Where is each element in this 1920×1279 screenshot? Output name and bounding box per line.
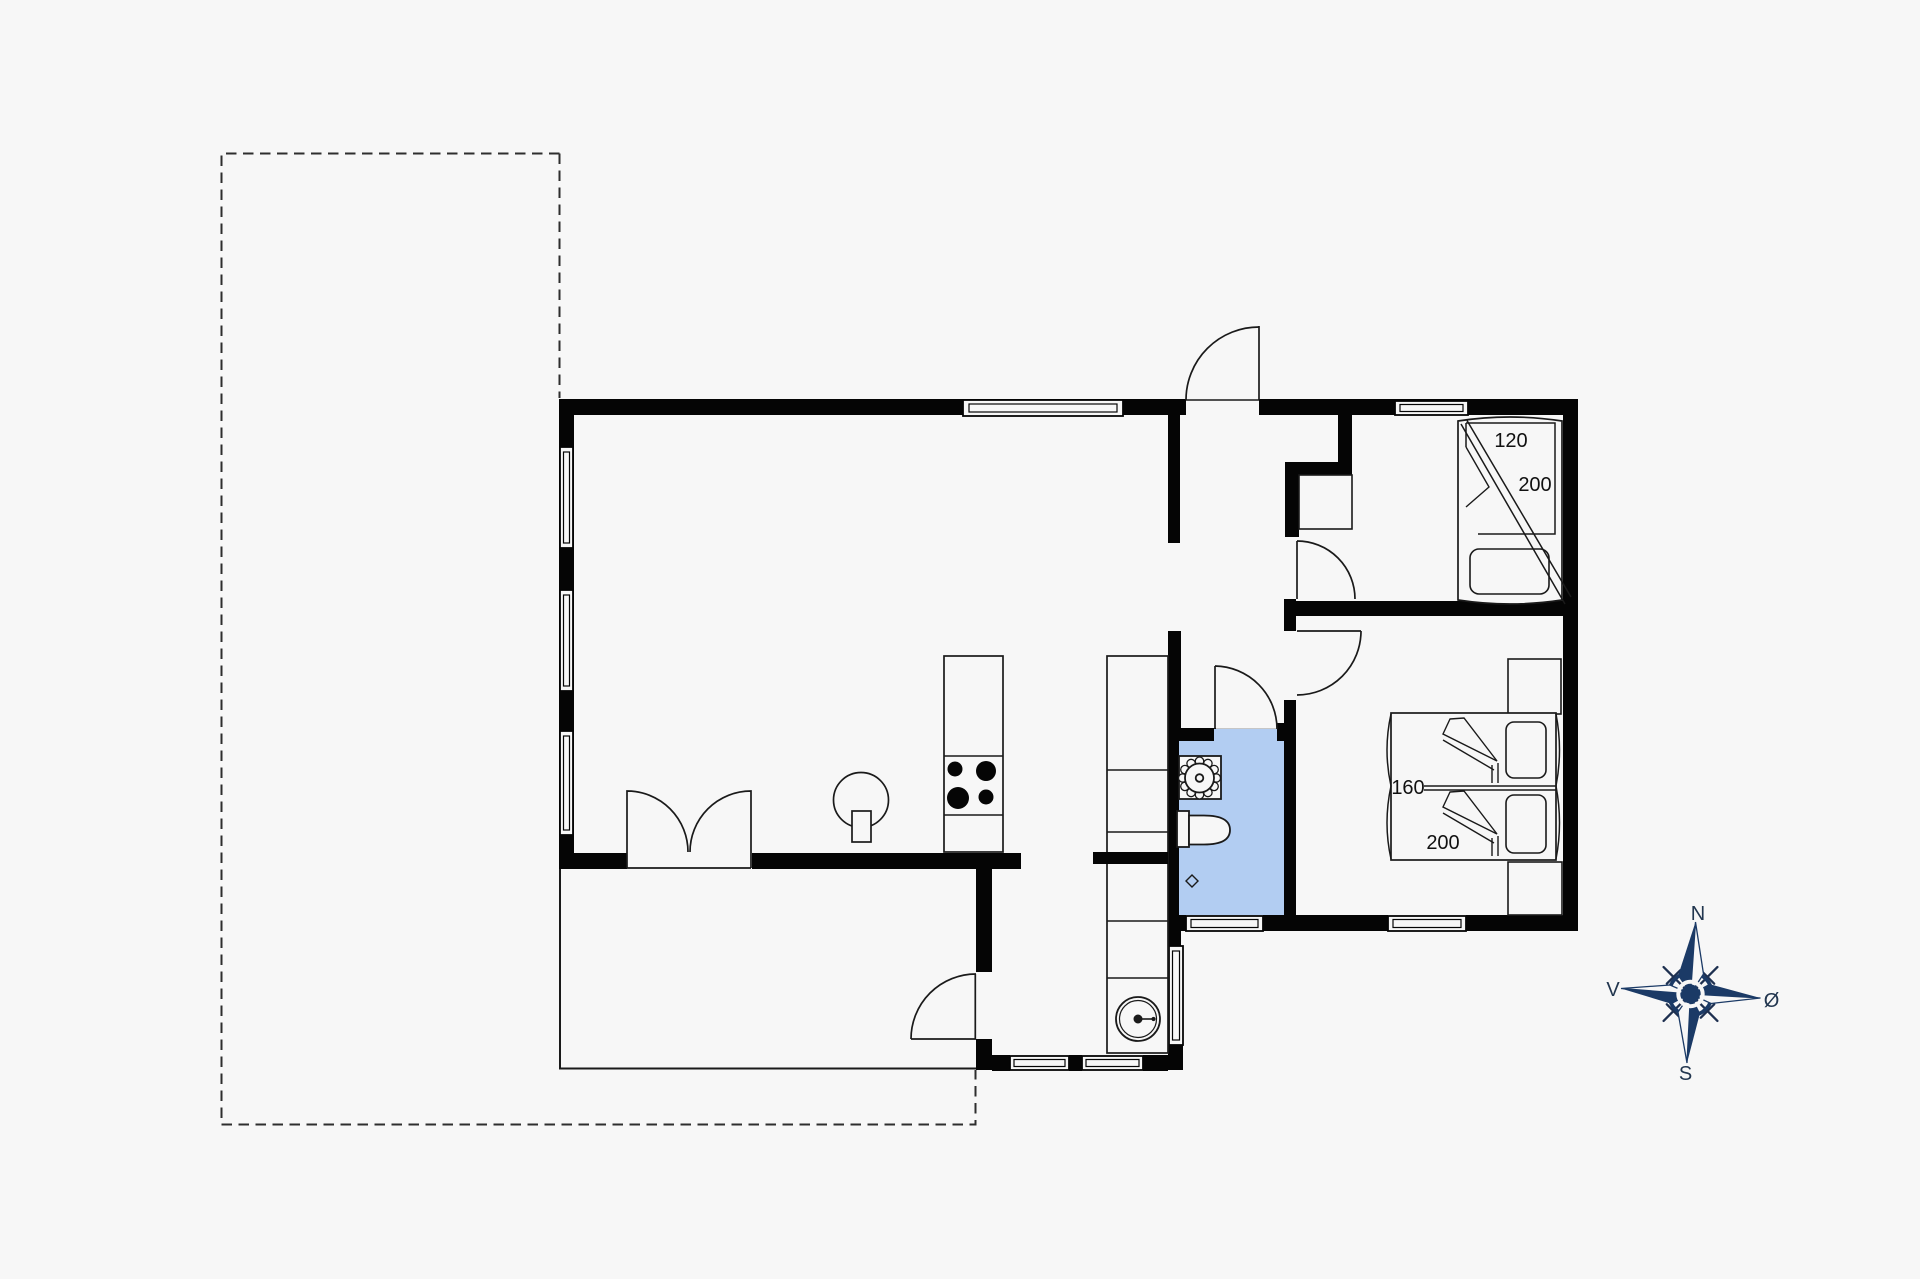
svg-text:200: 200: [1518, 474, 1551, 496]
svg-text:V: V: [1606, 979, 1620, 1001]
svg-text:120: 120: [1494, 430, 1527, 452]
svg-text:Ø: Ø: [1764, 990, 1780, 1012]
svg-text:S: S: [1679, 1063, 1692, 1085]
svg-text:160: 160: [1391, 777, 1424, 799]
svg-text:N: N: [1691, 903, 1705, 925]
svg-text:200: 200: [1426, 832, 1459, 854]
